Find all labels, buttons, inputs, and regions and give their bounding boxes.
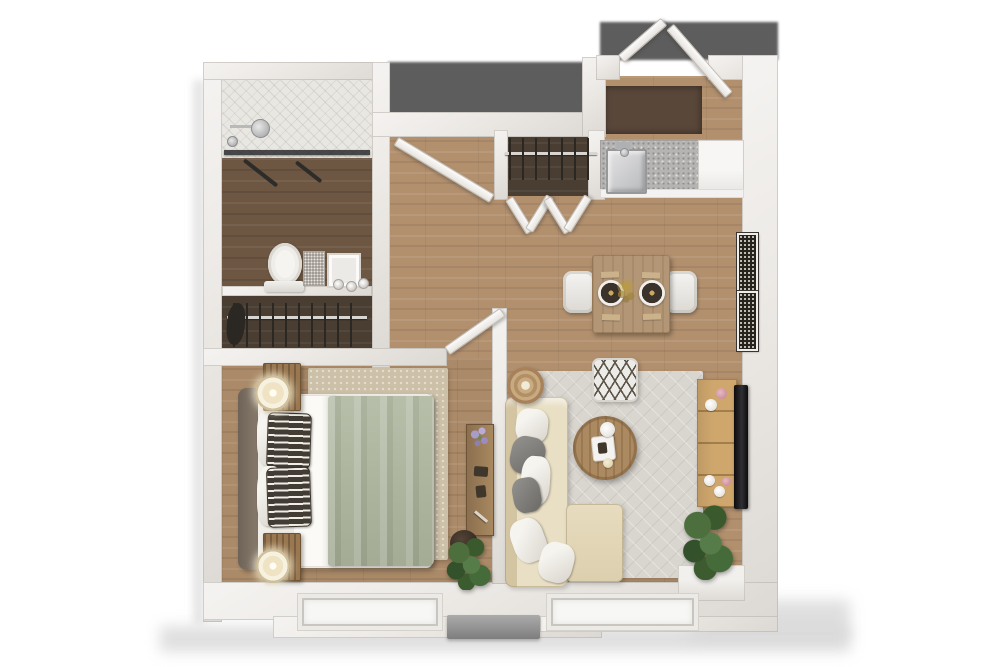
living-window: [547, 594, 698, 630]
console-vase-pink-1: [716, 388, 727, 399]
shower-floor: [222, 76, 372, 158]
coffee-table-candle: [603, 458, 613, 468]
floor-plan: [0, 0, 1000, 667]
bathroom-closet-hangers: [233, 303, 361, 347]
tv: [734, 385, 748, 509]
bed-duvet: [328, 396, 434, 566]
wall-art-lower: [737, 291, 758, 351]
sink-knob-3: [358, 278, 369, 289]
coat-closet-hangers: [509, 138, 595, 180]
shower-valve: [227, 136, 238, 147]
table-lamp-upper: [255, 375, 291, 411]
placemat-3: [602, 314, 620, 321]
sink-knob-2: [346, 281, 357, 292]
table-lamp-lower: [256, 549, 290, 583]
sink-knob-1: [333, 279, 344, 290]
exterior-shadow-notch: [388, 62, 600, 115]
kitchen-cabinet-white: [698, 140, 744, 196]
wall-left: [203, 62, 222, 622]
wall-bathroom-right: [372, 62, 390, 368]
sofa-chaise: [566, 504, 623, 582]
toilet-tank: [264, 281, 304, 292]
wall-entry-top-a: [596, 55, 620, 80]
vanity-mirror: [303, 251, 325, 286]
wall-hallway-top: [372, 112, 602, 137]
desk-flowers: [467, 425, 492, 452]
wall-art-upper: [737, 233, 758, 292]
wall-bedroom-top: [203, 348, 447, 366]
wall-coat-closet-left: [494, 130, 508, 200]
bedroom-window: [298, 594, 442, 630]
dining-chair-left: [563, 271, 595, 313]
shower-glass-panel: [224, 150, 370, 155]
console-orb-white-1: [704, 475, 715, 486]
dinner-plate-2: [639, 280, 665, 306]
exterior-unit-ledge: [447, 615, 540, 639]
coffee-table-plate: [600, 422, 615, 437]
shower-head: [251, 119, 270, 138]
desk-item-1: [474, 466, 489, 477]
console-bowl-white: [705, 399, 717, 411]
side-table: [507, 367, 544, 404]
bed-pillow-striped-1: [266, 412, 312, 470]
bed-pillow-striped-2: [266, 466, 312, 527]
console-orb-white-2: [714, 486, 725, 497]
living-plant: [682, 504, 734, 580]
toilet-bowl: [268, 243, 302, 285]
tray-teapot: [597, 442, 607, 454]
placemat-2: [642, 272, 660, 279]
console-vase-pink-2: [722, 477, 731, 486]
wall-top-bathroom: [203, 62, 390, 80]
table-centerpiece: [616, 277, 636, 305]
desk-item-2: [475, 485, 486, 498]
entry-doormat: [604, 86, 702, 134]
placemat-4: [643, 313, 661, 320]
bedroom-plant: [444, 538, 494, 590]
kitchen-faucet-knob: [620, 148, 629, 157]
floor-pouf: [592, 358, 638, 402]
